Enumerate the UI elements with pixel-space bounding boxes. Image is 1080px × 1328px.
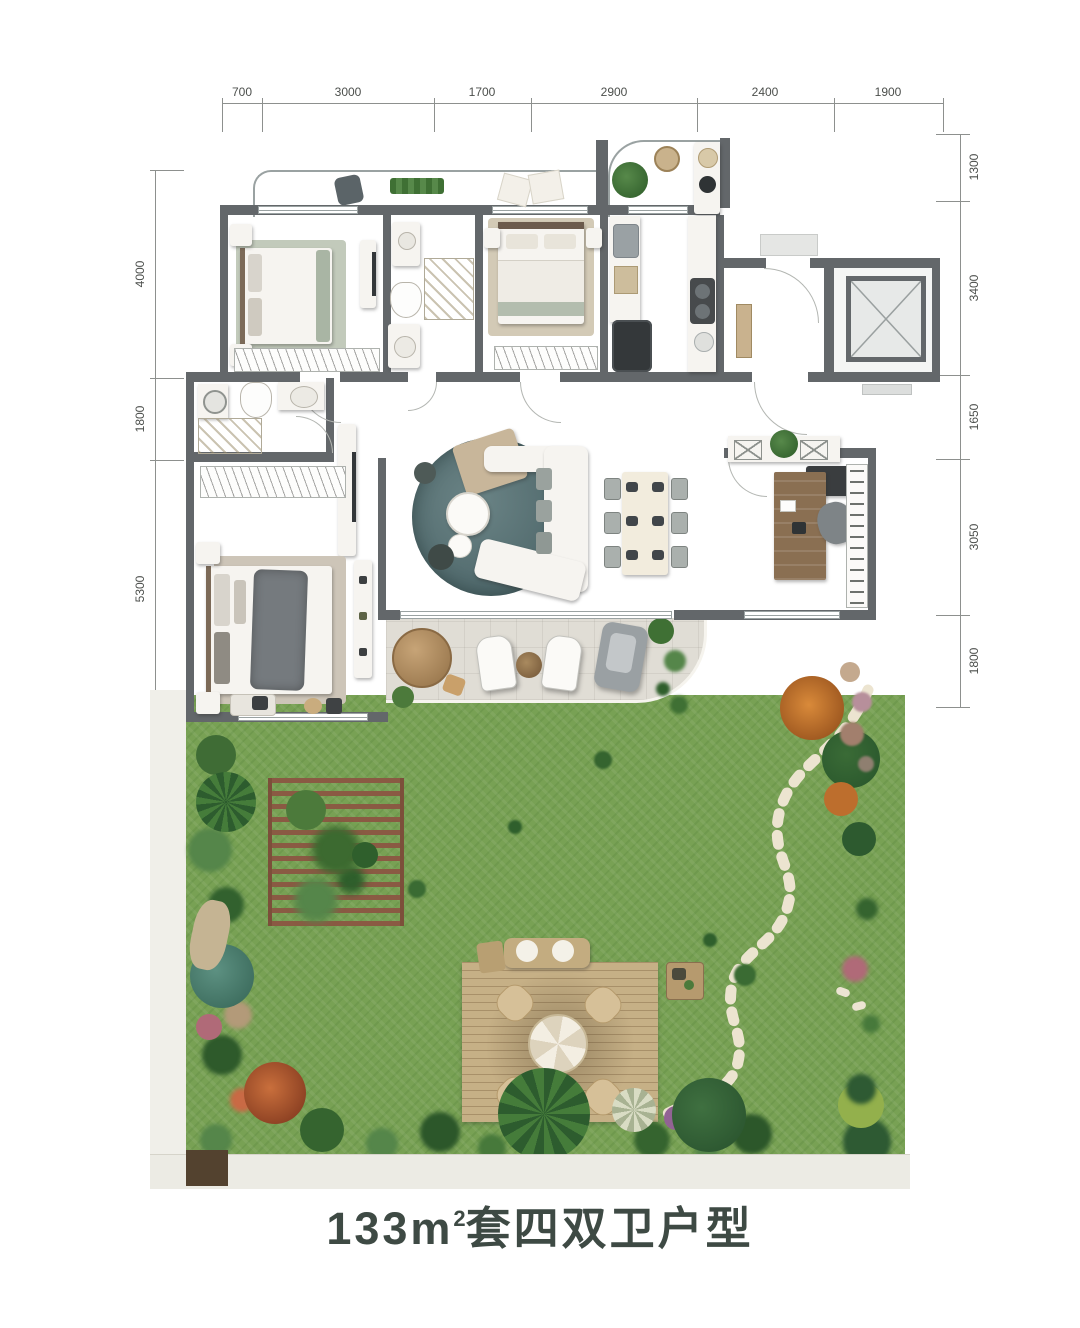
dim-tick bbox=[150, 460, 184, 461]
dining-chair bbox=[604, 512, 621, 534]
place-setting bbox=[626, 516, 638, 526]
wall bbox=[560, 372, 724, 382]
terrace-plant-small bbox=[392, 686, 414, 708]
bath1-sink bbox=[398, 232, 416, 250]
nightstand bbox=[230, 224, 252, 246]
sofa-cushion bbox=[536, 500, 552, 522]
dim-label-top-2900: 2900 bbox=[592, 85, 636, 99]
pouf bbox=[414, 462, 436, 484]
wall bbox=[378, 610, 400, 620]
shrub-cluster-bottom bbox=[300, 1108, 344, 1152]
wall bbox=[724, 372, 752, 382]
wall bbox=[724, 258, 766, 268]
bed-headboard bbox=[498, 222, 584, 229]
title-area-value: 133m bbox=[326, 1203, 453, 1254]
desk-laptop bbox=[792, 522, 806, 534]
dim-label-top-1900: 1900 bbox=[866, 85, 910, 99]
counter-wok bbox=[699, 176, 716, 193]
dim-tick bbox=[936, 707, 970, 708]
bed-pillow bbox=[506, 234, 538, 249]
dim-tick bbox=[697, 98, 698, 132]
sofa-cushion bbox=[536, 532, 552, 554]
shrub-cluster-right bbox=[842, 822, 876, 856]
terrace-umbrella-table bbox=[392, 628, 452, 688]
lounge-chair bbox=[540, 634, 583, 692]
bed-pillow bbox=[214, 574, 230, 626]
bed-pillow bbox=[214, 632, 230, 684]
terrace-slider-door bbox=[400, 611, 672, 619]
lawn-plants bbox=[352, 842, 378, 868]
balcony-planter bbox=[390, 178, 444, 194]
dim-label-top-3000: 3000 bbox=[326, 85, 370, 99]
dim-tick bbox=[834, 98, 835, 132]
dim-tick bbox=[936, 615, 970, 616]
palm-tree-icon bbox=[196, 772, 256, 832]
dining-chair bbox=[604, 478, 621, 500]
washing-machine-icon bbox=[203, 390, 227, 414]
window bbox=[258, 206, 358, 214]
dim-label-left-1800: 1800 bbox=[133, 397, 147, 441]
desk-papers bbox=[780, 500, 796, 512]
corner-post bbox=[186, 1150, 228, 1186]
place-setting bbox=[652, 550, 664, 560]
place-setting bbox=[626, 550, 638, 560]
nightstand bbox=[484, 228, 500, 248]
bed-pillow bbox=[544, 234, 576, 249]
stool bbox=[304, 698, 322, 714]
wall bbox=[378, 458, 386, 618]
dim-label-right-3050: 3050 bbox=[967, 515, 981, 559]
bench-item bbox=[252, 696, 268, 710]
floor-item bbox=[326, 698, 342, 714]
wall bbox=[340, 372, 408, 382]
garden-rocks-right bbox=[840, 662, 860, 682]
balcony-chair bbox=[333, 174, 364, 207]
pouf bbox=[428, 544, 454, 570]
x-cabinet-door bbox=[800, 440, 828, 460]
elevator-call-panel bbox=[862, 384, 912, 395]
master-duvet bbox=[250, 569, 308, 691]
palm-tree-large-icon bbox=[498, 1068, 590, 1160]
kitchen-balcony-table bbox=[654, 146, 680, 172]
dark-tree-icon bbox=[672, 1078, 746, 1152]
fridge-icon bbox=[612, 320, 652, 372]
flower-cluster-pink bbox=[196, 1014, 222, 1040]
wall bbox=[824, 258, 834, 378]
shower-icon bbox=[424, 258, 474, 320]
cutting-board bbox=[614, 266, 638, 294]
bedroom1-closet bbox=[234, 348, 380, 372]
dim-label-right-1650: 1650 bbox=[967, 395, 981, 439]
plan-title: 133m2套四双卫户型 bbox=[0, 1192, 1080, 1257]
tv-icon bbox=[352, 452, 356, 522]
dim-tick bbox=[434, 98, 435, 132]
bed-headboard bbox=[206, 566, 211, 694]
dimension-line-right bbox=[960, 134, 961, 707]
bed-pillow bbox=[248, 254, 262, 292]
bed-throw bbox=[498, 302, 584, 316]
wall bbox=[186, 372, 194, 722]
bed-pillow bbox=[248, 298, 262, 336]
dim-tick bbox=[936, 375, 970, 376]
counter-bowl bbox=[698, 148, 718, 168]
dim-tick bbox=[150, 378, 184, 379]
terrace-side-table bbox=[516, 652, 542, 678]
deck-side-table bbox=[476, 940, 506, 973]
garden-side-pavement bbox=[150, 690, 190, 1156]
dim-label-top-2400: 2400 bbox=[743, 85, 787, 99]
console-plant bbox=[770, 430, 798, 458]
wall bbox=[220, 205, 228, 380]
pergola-vines bbox=[286, 790, 326, 830]
kitchen-sink bbox=[613, 224, 639, 258]
bed-pillow bbox=[234, 580, 246, 624]
place-setting bbox=[626, 482, 638, 492]
place-setting bbox=[652, 482, 664, 492]
nightstand bbox=[196, 692, 220, 714]
dim-label-right-1800: 1800 bbox=[967, 639, 981, 683]
console-item bbox=[359, 648, 367, 656]
x-cabinet-door bbox=[734, 440, 762, 460]
dim-tick bbox=[150, 170, 184, 171]
bedroom2-closet bbox=[494, 346, 598, 370]
spiky-plant-icon bbox=[612, 1088, 656, 1132]
dim-tick bbox=[262, 98, 263, 132]
dim-label-right-3400: 3400 bbox=[967, 266, 981, 310]
place-setting bbox=[652, 516, 664, 526]
nightstand bbox=[196, 542, 220, 564]
toilet-icon bbox=[240, 382, 272, 418]
dim-tick bbox=[936, 459, 970, 460]
wall bbox=[596, 140, 608, 215]
balcony-towel bbox=[528, 169, 565, 204]
console-item bbox=[359, 576, 367, 584]
dining-chair bbox=[604, 546, 621, 568]
orange-bush-icon bbox=[824, 782, 858, 816]
dim-tick bbox=[943, 98, 944, 132]
window bbox=[492, 206, 588, 214]
floor-plan-canvas: 700 3000 1700 2900 2400 1900 4000 1800 5… bbox=[0, 0, 1080, 1328]
dim-tick bbox=[936, 201, 970, 202]
dimension-line-left bbox=[155, 170, 156, 718]
bench-pillow bbox=[516, 940, 538, 962]
wall bbox=[716, 215, 724, 380]
stove-burner bbox=[695, 304, 710, 319]
terrace-plants bbox=[648, 618, 674, 644]
dining-chair bbox=[671, 546, 688, 568]
dim-tick bbox=[222, 98, 223, 132]
master-wardrobe bbox=[200, 466, 346, 498]
dim-label-top-1700: 1700 bbox=[460, 85, 504, 99]
dim-label-left-5300: 5300 bbox=[133, 567, 147, 611]
dim-tick bbox=[531, 98, 532, 132]
console-item bbox=[359, 612, 367, 620]
kitchen-sink-small bbox=[694, 332, 714, 352]
wall bbox=[475, 215, 483, 372]
wall bbox=[720, 138, 730, 208]
study-window bbox=[744, 611, 840, 619]
bed-throw bbox=[316, 250, 330, 342]
wall bbox=[868, 448, 876, 620]
dim-label-right-1300: 1300 bbox=[967, 145, 981, 189]
red-tree-icon bbox=[244, 1062, 306, 1124]
wall bbox=[808, 372, 824, 382]
window bbox=[628, 206, 688, 214]
dim-tick bbox=[936, 134, 970, 135]
entry-door-step bbox=[760, 234, 818, 256]
kitchen-balcony-plant bbox=[612, 162, 648, 198]
dining-chair bbox=[671, 478, 688, 500]
title-plan-name: 套四双卫户型 bbox=[466, 1203, 754, 1254]
wall bbox=[436, 372, 520, 382]
wall bbox=[186, 372, 300, 382]
vanity-sink bbox=[394, 336, 416, 358]
dim-label-top-700: 700 bbox=[220, 85, 264, 99]
vanity-sink bbox=[290, 386, 318, 408]
wall bbox=[932, 258, 940, 378]
orange-tree-icon bbox=[780, 676, 844, 740]
stove-burner bbox=[695, 284, 710, 299]
wall bbox=[824, 372, 940, 382]
bottom-pavement bbox=[150, 1154, 910, 1189]
sofa-cushion bbox=[536, 468, 552, 490]
shrub-cluster-left bbox=[196, 735, 236, 775]
dark-bush-right-icon bbox=[822, 730, 880, 788]
elevator-x-icon bbox=[851, 281, 921, 357]
wall bbox=[834, 258, 940, 268]
bookshelf-books bbox=[850, 468, 864, 604]
entry-console bbox=[736, 304, 752, 358]
tv-icon bbox=[372, 252, 376, 296]
shower-icon bbox=[198, 418, 262, 454]
title-area-sup: 2 bbox=[453, 1206, 465, 1231]
dim-label-left-4000: 4000 bbox=[133, 252, 147, 296]
yellow-bush-icon bbox=[838, 1082, 884, 1128]
dining-chair bbox=[671, 512, 688, 534]
toilet-icon bbox=[390, 282, 422, 318]
nightstand bbox=[586, 228, 602, 248]
bed-headboard bbox=[240, 248, 245, 344]
coffee-table bbox=[446, 492, 490, 536]
